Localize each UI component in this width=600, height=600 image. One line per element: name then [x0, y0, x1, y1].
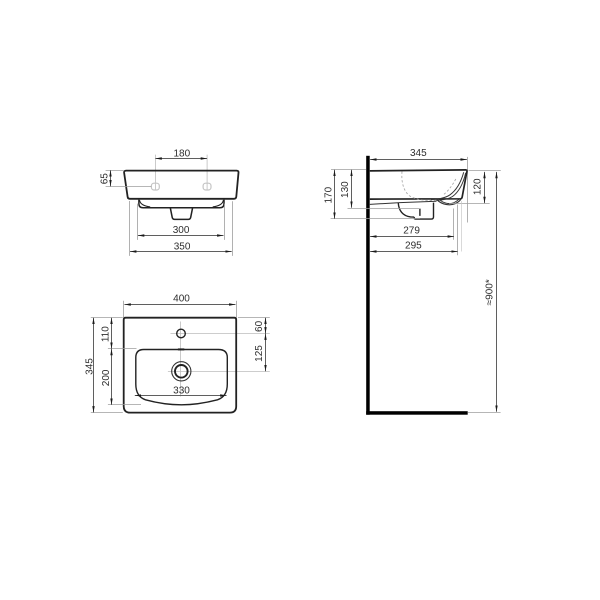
- svg-text:125: 125: [254, 345, 265, 362]
- svg-text:180: 180: [174, 148, 191, 159]
- svg-text:279: 279: [403, 225, 420, 236]
- svg-text:345: 345: [410, 148, 427, 159]
- svg-text:295: 295: [405, 241, 422, 252]
- svg-text:345: 345: [84, 358, 95, 375]
- svg-text:60: 60: [254, 320, 265, 332]
- svg-text:330: 330: [173, 385, 190, 396]
- svg-text:120: 120: [473, 178, 484, 195]
- svg-text:400: 400: [173, 294, 190, 305]
- svg-text:110: 110: [100, 326, 111, 342]
- svg-text:65: 65: [100, 173, 111, 185]
- svg-text:170: 170: [324, 186, 335, 203]
- svg-text:130: 130: [340, 181, 351, 198]
- svg-text:200: 200: [101, 369, 112, 386]
- svg-text:300: 300: [173, 225, 190, 236]
- svg-text:≈900*: ≈900*: [484, 279, 495, 305]
- svg-text:350: 350: [174, 242, 191, 253]
